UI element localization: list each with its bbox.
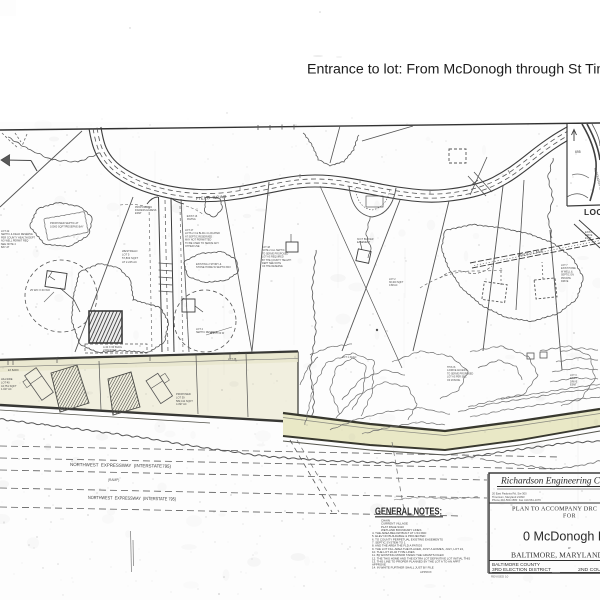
svg-text:REVISED 10: REVISED 10	[491, 575, 509, 579]
svg-text:APPROX: APPROX	[420, 570, 432, 574]
svg-text:OF ZONING: OF ZONING	[447, 379, 460, 382]
svg-text:AT 2.245 AC: AT 2.245 AC	[122, 260, 137, 264]
svg-text:2ND COU: 2ND COU	[578, 567, 600, 572]
svg-text:BALTIMORE, MARYLAND: BALTIMORE, MARYLAND	[511, 551, 600, 560]
svg-text:PLAN TO ACCOMPANY DRC: PLAN TO ACCOMPANY DRC	[512, 506, 597, 513]
svg-text:Entrance to lot: From McDonogh: Entrance to lot: From McDonogh through S…	[307, 62, 600, 78]
svg-text:57,803 SQFT: 57,803 SQFT	[122, 256, 138, 260]
svg-text:44,751 SQFT: 44,751 SQFT	[1, 384, 17, 388]
svg-text:3RD ELECTION DISTRICT: 3RD ELECTION DISTRICT	[492, 567, 551, 572]
svg-text:LOT 5: LOT 5	[122, 253, 130, 257]
svg-text:STONE HOME W SEPTIC BAY: STONE HOME W SEPTIC BAY	[196, 266, 231, 269]
svg-text:PAVING: PAVING	[187, 218, 196, 221]
svg-text:ESMT: ESMT	[585, 237, 592, 240]
svg-text:LOT 1 30 AC: LOT 1 30 AC	[342, 356, 357, 359]
svg-text:582,411 SQFT: 582,411 SQFT	[176, 399, 193, 403]
svg-text:0 McDonogh R: 0 McDonogh R	[523, 530, 600, 544]
svg-text:BAY AT: BAY AT	[1, 246, 10, 249]
svg-text:EASEMENT: EASEMENT	[357, 241, 371, 244]
svg-text:GENERAL NOTES:: GENERAL NOTES:	[375, 507, 442, 518]
svg-text:LOT 39: LOT 39	[176, 395, 185, 399]
svg-text:0.88 AC: 0.88 AC	[389, 284, 398, 287]
svg-text:(RAMP): (RAMP)	[108, 478, 119, 482]
svg-text:HILLSIDE: HILLSIDE	[1, 377, 13, 381]
svg-text:W 25 X 60 W: W 25 X 60 W	[210, 332, 225, 335]
svg-text:1.027 AC: 1.027 AC	[1, 387, 12, 391]
svg-text:OTHER USE: OTHER USE	[185, 245, 200, 248]
svg-text:OF THE RESERVE: OF THE RESERVE	[262, 265, 283, 268]
svg-text:4.397 AC: 4.397 AC	[176, 402, 187, 406]
svg-text:ESMT: ESMT	[135, 212, 142, 215]
svg-text:EX BARN: EX BARN	[8, 369, 19, 372]
svg-text:LOT 40: LOT 40	[1, 380, 10, 384]
svg-text:2400 SQFT: 2400 SQFT	[103, 348, 117, 352]
svg-text:ESMT: ESMT	[570, 384, 577, 387]
svg-text:LOCATION MAP: LOCATION MAP	[584, 207, 600, 217]
svg-text:25 WO X 60 WO: 25 WO X 60 WO	[30, 288, 50, 292]
svg-text:WESTFIELD: WESTFIELD	[122, 249, 137, 253]
svg-text:FOR: FOR	[563, 514, 576, 520]
svg-text:PROPOSED: PROPOSED	[176, 392, 191, 396]
svg-text:PROPOSED SEPTIC AT: PROPOSED SEPTIC AT	[50, 221, 79, 225]
